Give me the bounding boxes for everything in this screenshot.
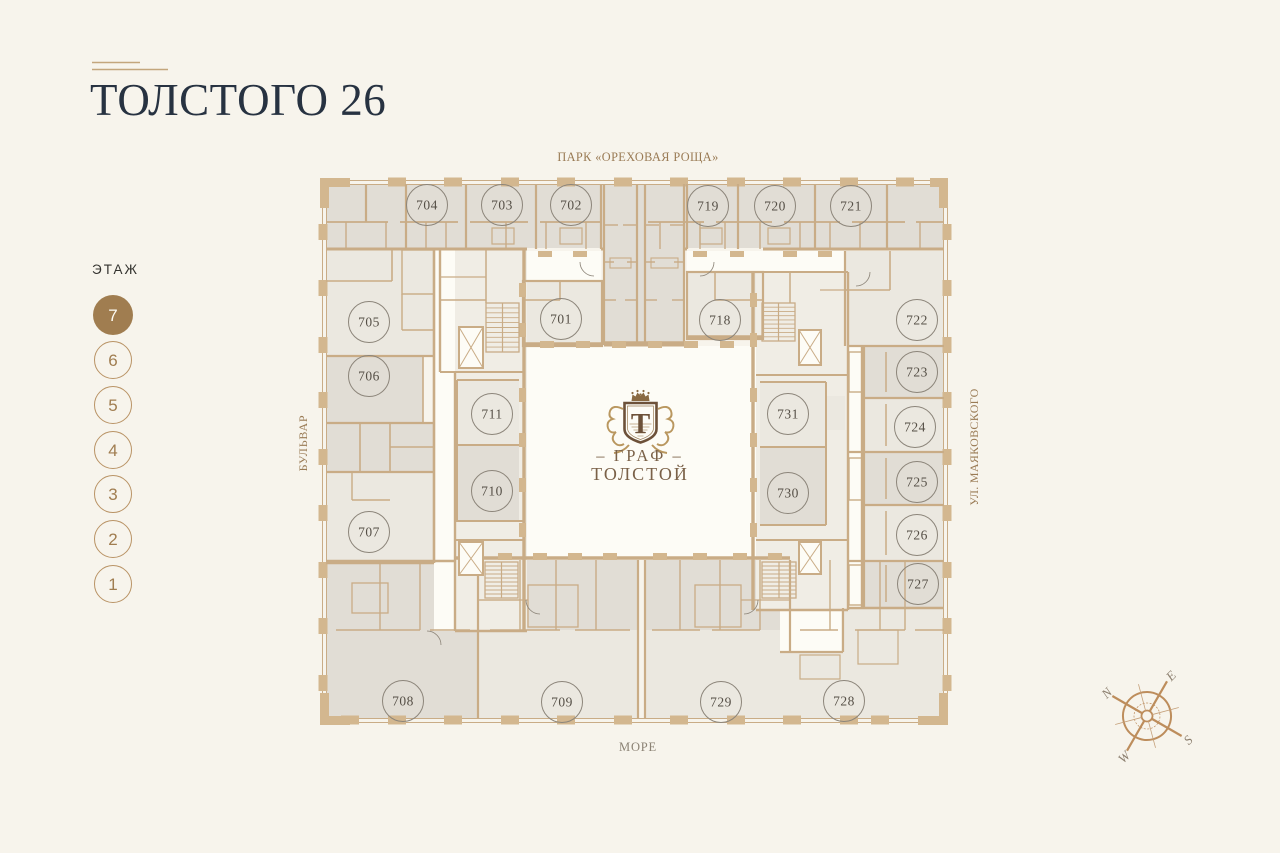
svg-text:ПАРК «ОРЕХОВАЯ РОЩА»: ПАРК «ОРЕХОВАЯ РОЩА» bbox=[557, 150, 718, 164]
svg-text:– ГРАФ –: – ГРАФ – bbox=[595, 446, 684, 465]
svg-text:705: 705 bbox=[358, 315, 380, 330]
svg-text:704: 704 bbox=[416, 198, 438, 213]
svg-text:725: 725 bbox=[906, 475, 928, 490]
svg-text:722: 722 bbox=[906, 313, 928, 328]
svg-text:728: 728 bbox=[833, 694, 855, 709]
svg-text:729: 729 bbox=[710, 695, 732, 710]
svg-text:701: 701 bbox=[550, 312, 572, 327]
svg-text:ТОЛСТОЙ: ТОЛСТОЙ bbox=[591, 464, 689, 484]
svg-text:707: 707 bbox=[358, 525, 380, 540]
svg-text:7: 7 bbox=[108, 306, 117, 325]
svg-text:724: 724 bbox=[904, 420, 926, 435]
svg-text:710: 710 bbox=[481, 484, 503, 499]
svg-text:703: 703 bbox=[491, 198, 513, 213]
svg-text:6: 6 bbox=[108, 351, 117, 370]
svg-text:726: 726 bbox=[906, 528, 928, 543]
svg-text:ТОЛСТОГО 26: ТОЛСТОГО 26 bbox=[90, 75, 386, 125]
svg-text:4: 4 bbox=[108, 441, 117, 460]
svg-text:Т: Т bbox=[631, 408, 650, 440]
svg-text:702: 702 bbox=[560, 198, 582, 213]
svg-text:5: 5 bbox=[108, 396, 117, 415]
svg-text:719: 719 bbox=[697, 199, 719, 214]
svg-text:3: 3 bbox=[108, 485, 117, 504]
svg-text:1: 1 bbox=[108, 575, 117, 594]
svg-text:711: 711 bbox=[481, 407, 502, 422]
svg-text:709: 709 bbox=[551, 695, 573, 710]
svg-text:731: 731 bbox=[777, 407, 799, 422]
svg-text:723: 723 bbox=[906, 365, 928, 380]
svg-text:2: 2 bbox=[108, 530, 117, 549]
svg-text:708: 708 bbox=[392, 694, 414, 709]
svg-text:УЛ. МАЯКОВСКОГО: УЛ. МАЯКОВСКОГО bbox=[967, 388, 981, 505]
svg-text:МОРЕ: МОРЕ bbox=[619, 740, 657, 754]
svg-text:706: 706 bbox=[358, 369, 380, 384]
svg-text:720: 720 bbox=[764, 199, 786, 214]
svg-text:721: 721 bbox=[840, 199, 862, 214]
svg-text:727: 727 bbox=[907, 577, 929, 592]
svg-text:ЭТАЖ: ЭТАЖ bbox=[92, 262, 139, 277]
svg-text:718: 718 bbox=[709, 313, 731, 328]
svg-text:730: 730 bbox=[777, 486, 799, 501]
svg-text:БУЛЬВАР: БУЛЬВАР bbox=[296, 415, 310, 472]
